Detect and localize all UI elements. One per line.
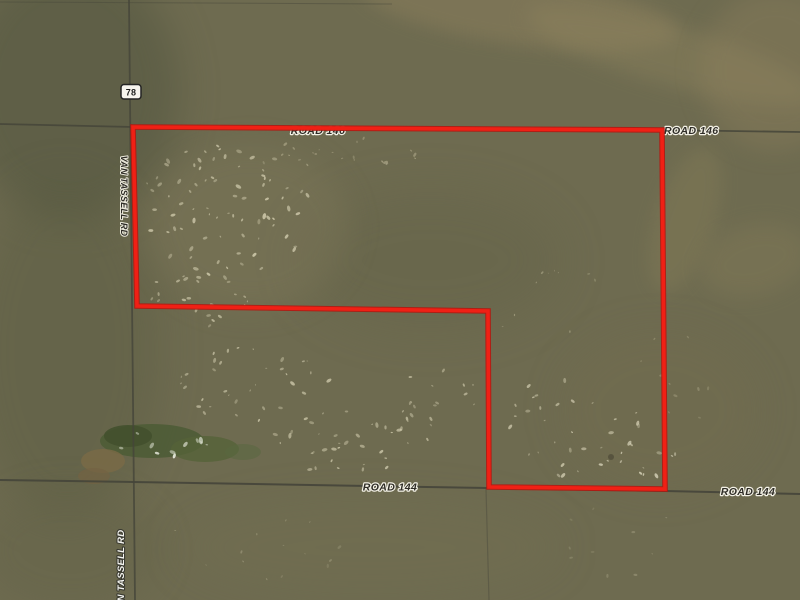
satellite-map[interactable]: ROAD 146 ROAD 146 ROAD 144 ROAD 144 VAN … — [0, 0, 800, 600]
van-tassell-rd-top-label: VAN TASSELL RD — [119, 156, 129, 237]
parcel-boundary-line[interactable] — [133, 127, 665, 489]
highway-shield-number: 78 — [126, 88, 136, 98]
map-overlay: ROAD 146 ROAD 146 ROAD 144 ROAD 144 VAN … — [0, 0, 800, 600]
van-tassell-rd-bottom-label: VAN TASSELL RD — [116, 530, 127, 600]
road-144-right-label: ROAD 144 — [721, 486, 776, 498]
terrain-speckles — [119, 136, 710, 580]
road-146-right-label: ROAD 146 — [664, 125, 719, 137]
highway-shield-78: 78 — [121, 85, 141, 100]
roads — [0, 0, 800, 600]
parcel-boundary[interactable] — [133, 127, 665, 489]
field-line — [0, 2, 392, 4]
trail-line — [486, 489, 489, 600]
road-144-center-label: ROAD 144 — [363, 482, 418, 494]
